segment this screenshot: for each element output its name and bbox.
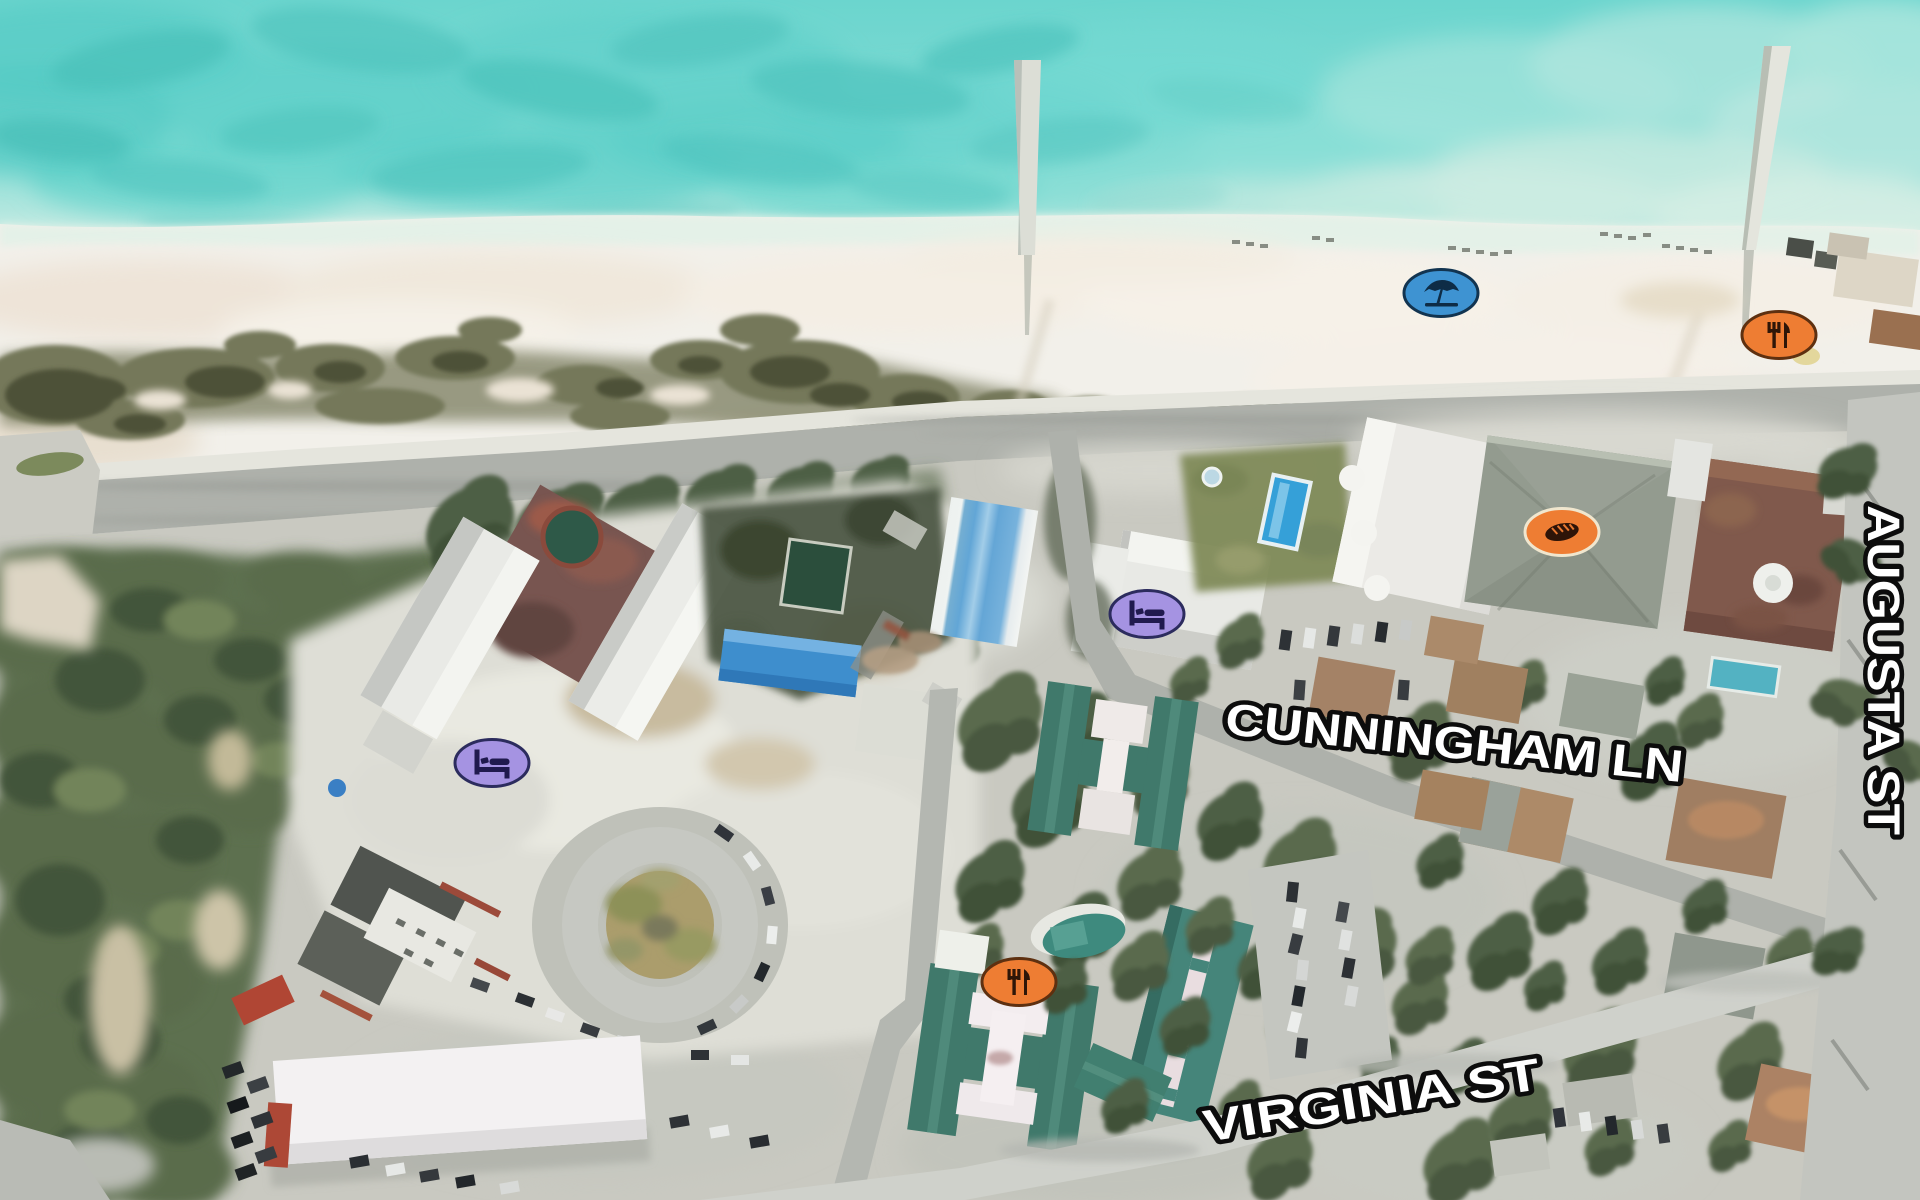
svg-text:AUGUSTA ST: AUGUSTA ST [1858, 505, 1909, 835]
